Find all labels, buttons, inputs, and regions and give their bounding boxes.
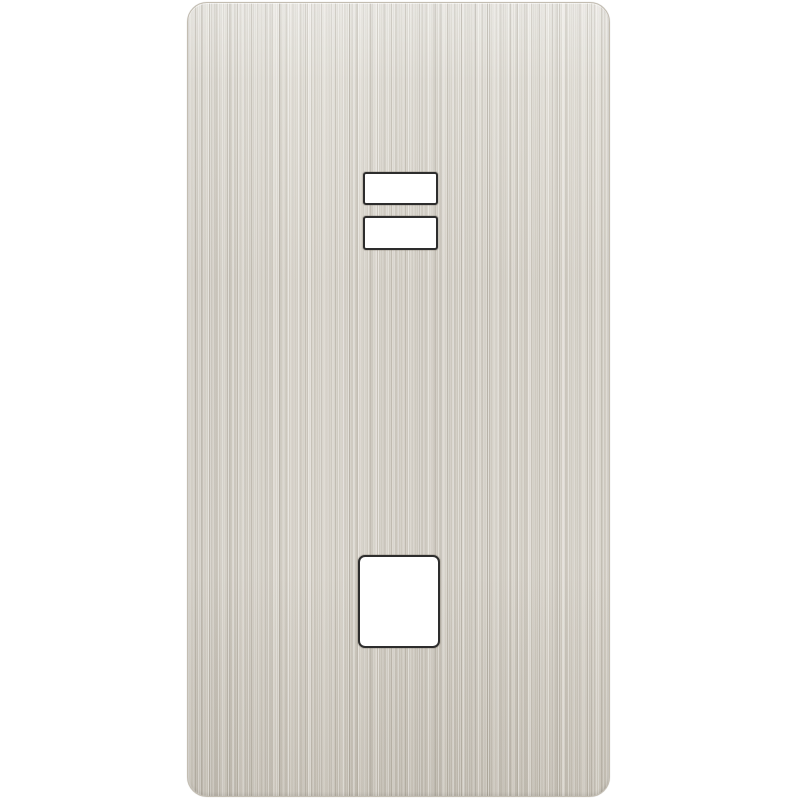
square-cutout <box>358 555 440 648</box>
product-image <box>0 0 800 800</box>
rocker-cutout-upper <box>363 172 438 205</box>
wall-plate <box>187 2 610 797</box>
rocker-cutout-lower <box>363 216 438 250</box>
